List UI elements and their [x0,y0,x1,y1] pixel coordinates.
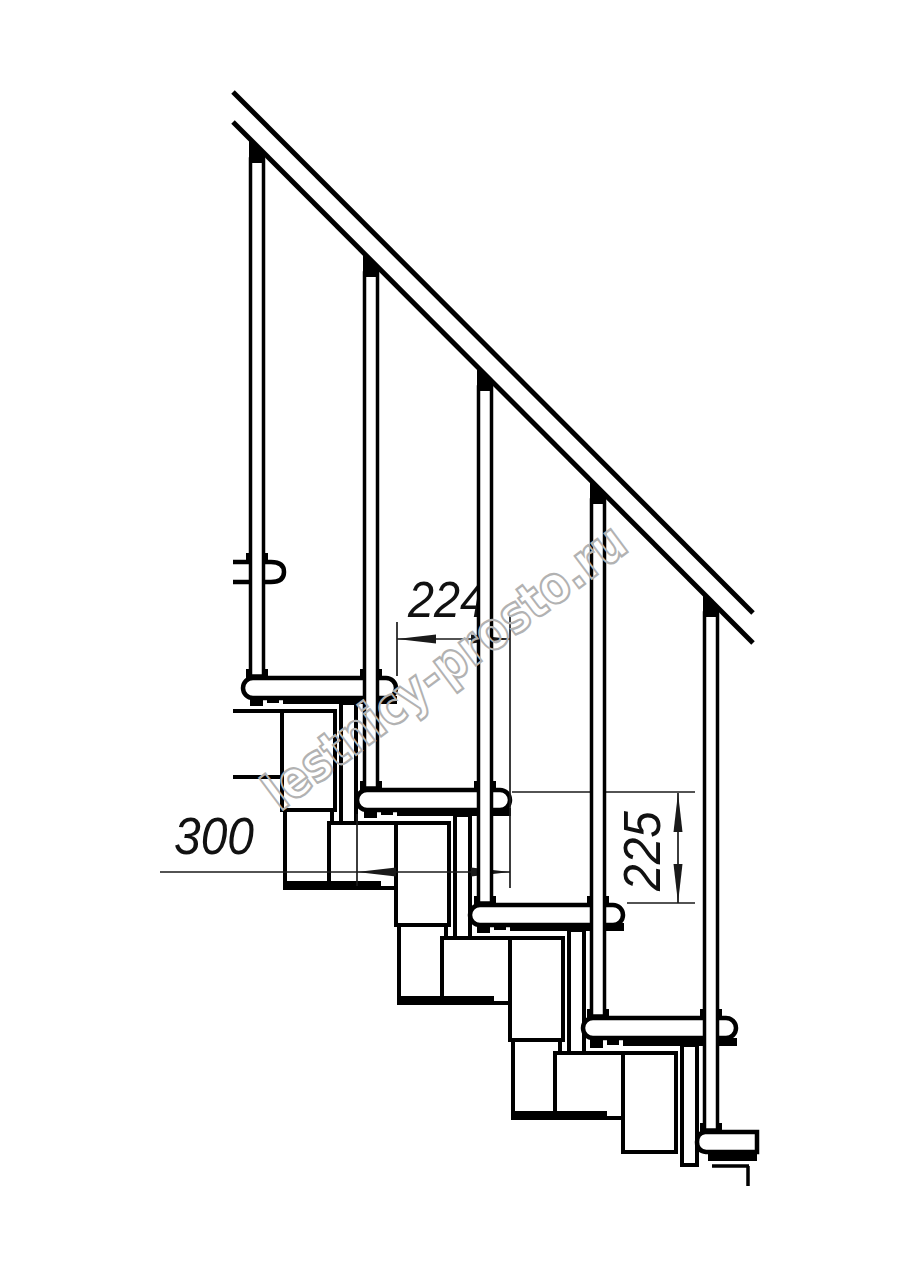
arrow-down-icon [674,864,683,903]
tread-6-partial [697,1132,757,1152]
bottom-cut-lines [712,1166,749,1186]
arrow-up-icon [674,793,683,832]
baluster-5 [705,613,718,1130]
baluster-1 [251,159,264,676]
support-module-5 [623,1045,697,1165]
watermark-text: lestnicy-prosto.ru [251,511,638,821]
dimension-rise-label: 225 [613,810,671,892]
staircase-technical-drawing: 224 300 225 [0,0,914,1280]
dimension-depth-label: 300 [174,807,254,865]
